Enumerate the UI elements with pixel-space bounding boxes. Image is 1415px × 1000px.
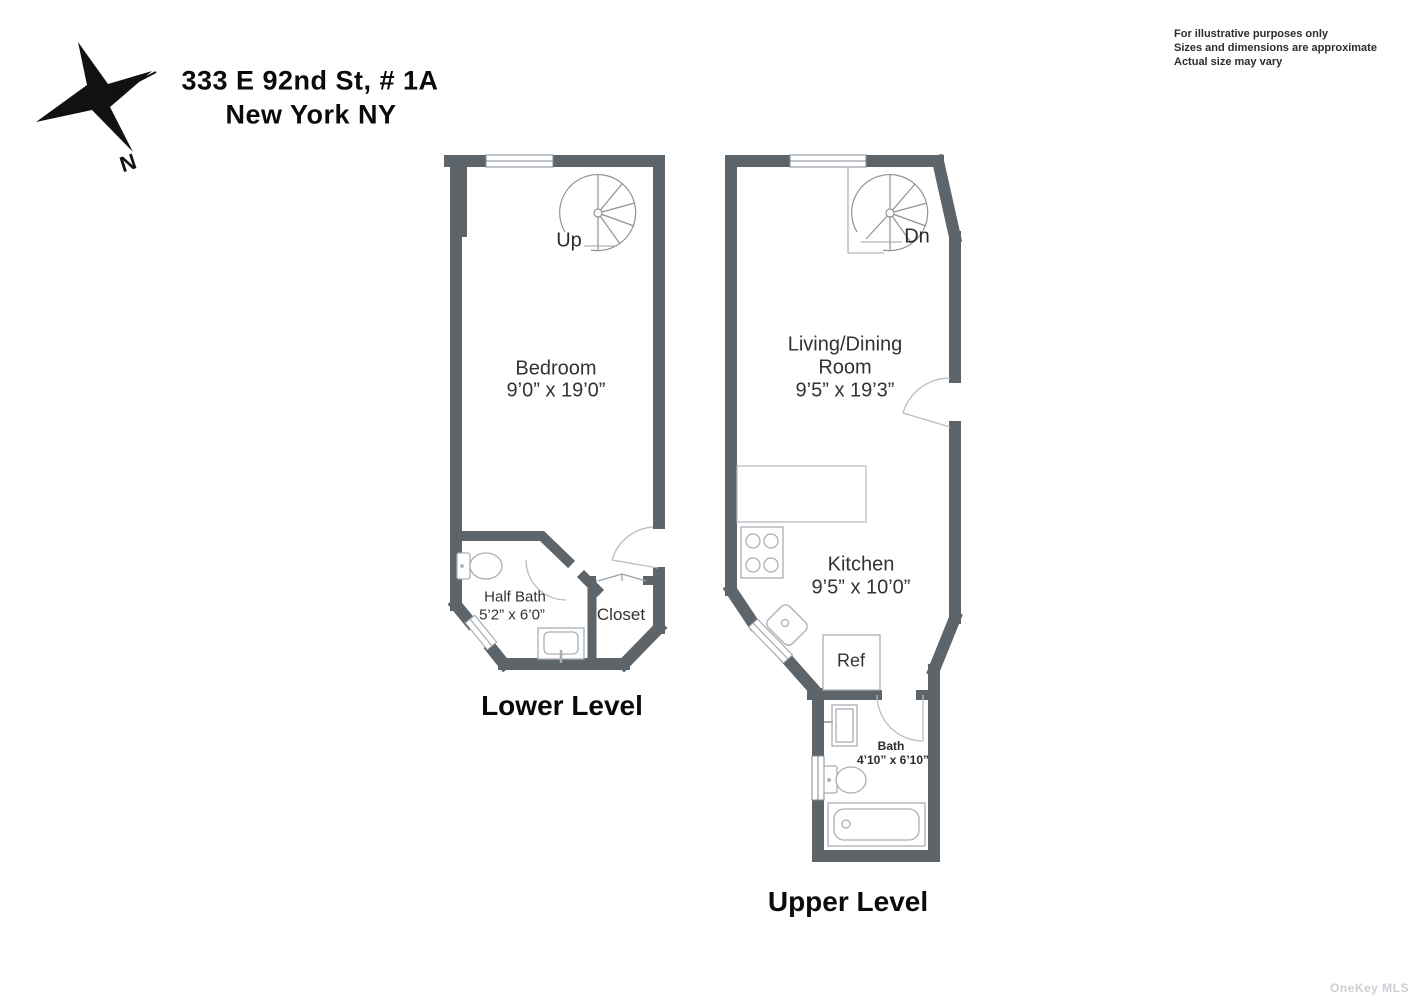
half-bath-dims: 5’2” x 6’0” [479, 606, 545, 623]
address-line-2: New York NY [225, 99, 396, 130]
half-bath-label: Half Bath [484, 588, 546, 605]
stove [741, 527, 783, 578]
refrigerator-label: Ref [837, 651, 865, 672]
closet-label: Closet [597, 605, 645, 625]
living-dining-label-line2: Room [818, 357, 871, 380]
floorplan-page: N 333 E 92nd St, # 1A New York NY For il… [0, 0, 1415, 1000]
kitchen-counter [737, 466, 866, 522]
toilet-bowl [470, 553, 502, 579]
disclaimer-line-2: Sizes and dimensions are approximate [1174, 41, 1377, 55]
upper-level-plan [731, 155, 955, 856]
bedroom-label: Bedroom [515, 358, 596, 381]
bedroom-dims: 9’0” x 19’0” [507, 380, 606, 403]
stair-down-label: Dn [904, 226, 930, 249]
compass-rose-icon [36, 42, 156, 152]
toilet-bowl [836, 767, 866, 793]
upper-exterior-walls [731, 161, 955, 856]
lower-level-plan [450, 155, 659, 664]
disclaimer-line-3: Actual size may vary [1174, 55, 1377, 69]
living-dining-label-line1: Living/Dining [788, 334, 903, 357]
lower-wall-step [450, 155, 467, 237]
bath-fixtures [824, 705, 925, 846]
stair-up-label: Up [556, 230, 582, 253]
kitchen-dims: 9’5” x 10’0” [812, 577, 911, 600]
floorplan-drawing [0, 0, 1415, 1000]
bath-label: Bath [878, 740, 905, 754]
kitchen-label: Kitchen [828, 554, 895, 577]
disclaimer-line-1: For illustrative purposes only [1174, 27, 1377, 41]
watermark-logo: OneKey MLS [1330, 981, 1409, 995]
lower-level-title: Lower Level [481, 690, 643, 722]
address-line-1: 333 E 92nd St, # 1A [181, 65, 438, 96]
living-dining-dims: 9’5” x 19’3” [796, 380, 895, 403]
upper-level-title: Upper Level [768, 886, 928, 918]
disclaimer-text: For illustrative purposes only Sizes and… [1174, 27, 1377, 69]
bath-dims: 4’10” x 6’10” [857, 754, 929, 768]
closet-door-jamb-left [587, 576, 596, 585]
